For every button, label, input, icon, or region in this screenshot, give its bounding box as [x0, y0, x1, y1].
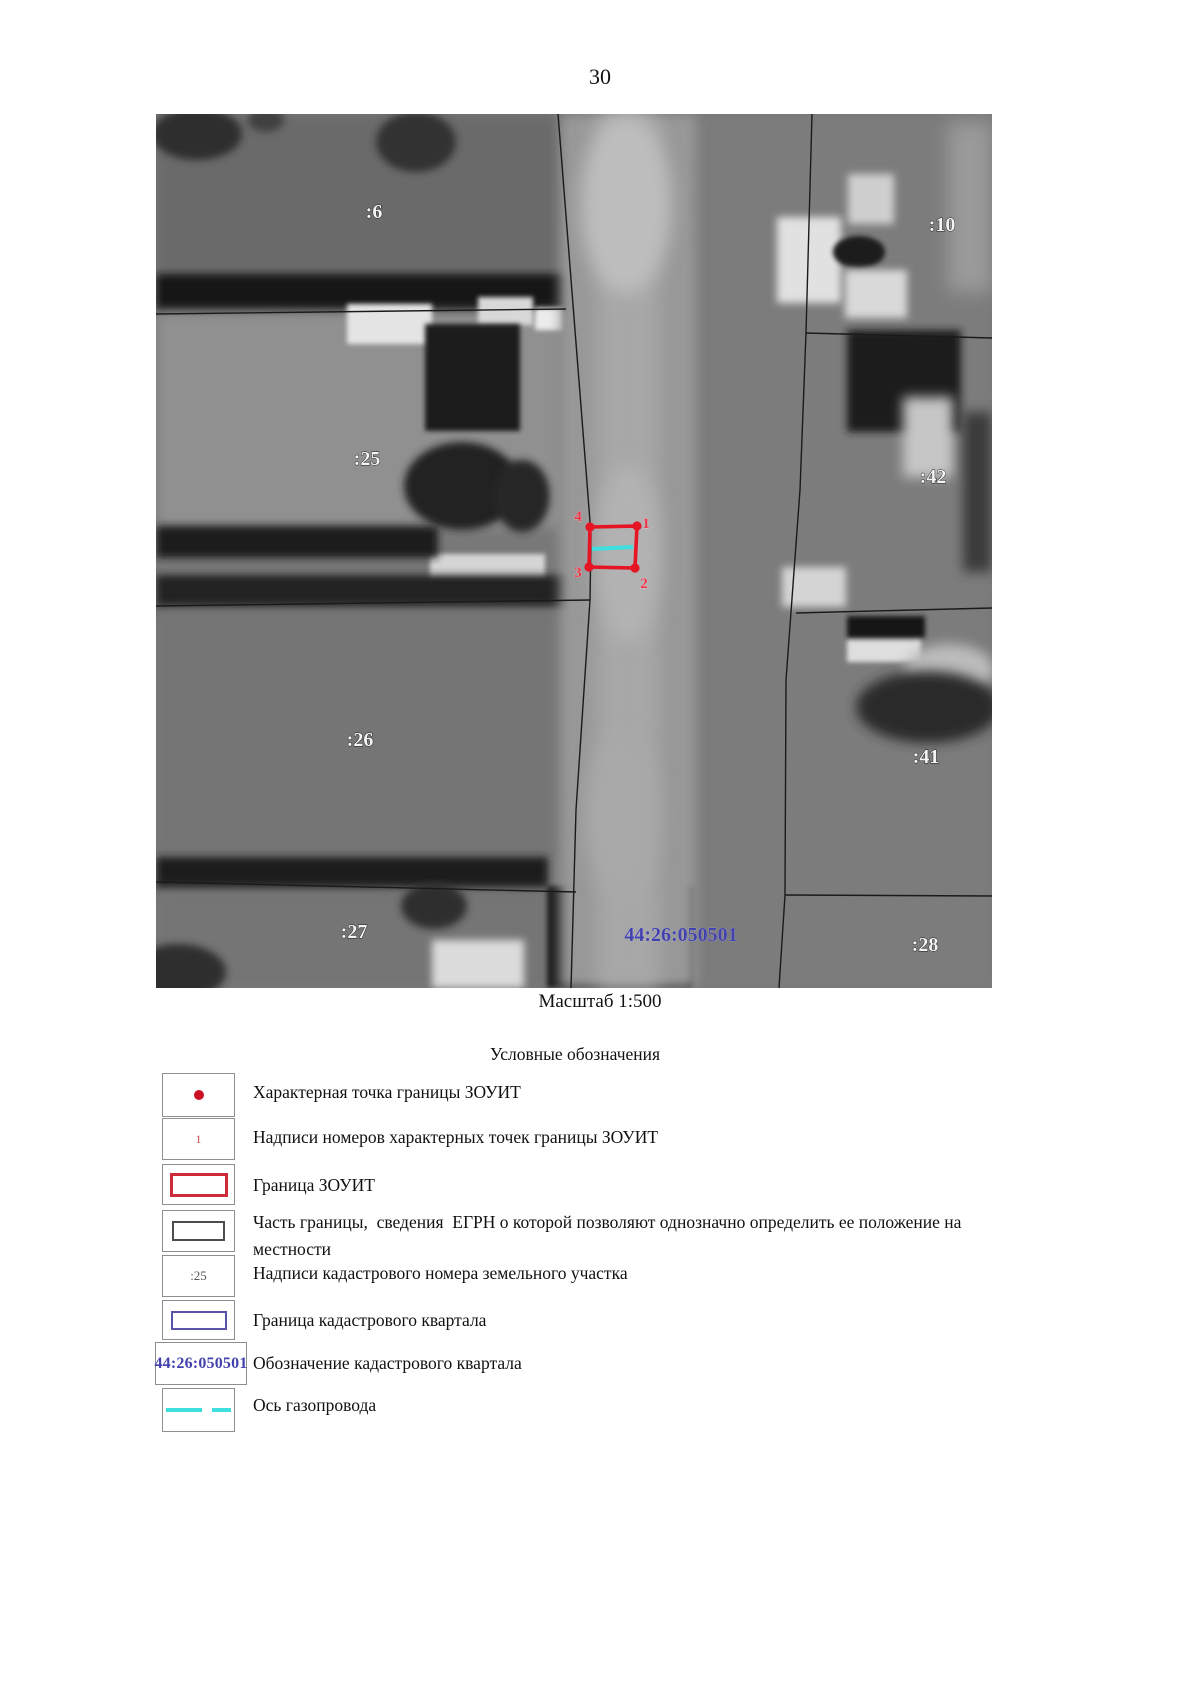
page-number: 30	[0, 64, 1200, 90]
scale-caption: Масштаб 1:500	[0, 991, 1200, 1013]
vertex-point-2	[630, 563, 639, 572]
legend-symbol-box-7: 44:26:050501	[155, 1342, 247, 1385]
legend-label-8: Ось газопровода	[253, 1392, 993, 1419]
legend-label-3: Граница ЗОУИТ	[253, 1172, 993, 1199]
vertex-label-1: 1	[642, 516, 650, 532]
legend-symbol-box-1	[162, 1073, 235, 1117]
legend-title: Условные обозначения	[0, 1044, 1150, 1065]
legend-label-2: Надписи номеров характерных точек границ…	[253, 1124, 993, 1151]
boundary-line-41-28	[785, 895, 992, 896]
legend-symbol-box-4	[162, 1210, 235, 1252]
legend-label-6: Граница кадастрового квартала	[253, 1307, 993, 1334]
parcel-label-42: :42	[920, 466, 947, 488]
legend-symbol-box-8	[162, 1388, 235, 1432]
parcel-label-41: :41	[913, 746, 940, 768]
legend-symbol-box-5: :25	[162, 1255, 235, 1297]
legend-label-7: Обозначение кадастрового квартала	[253, 1350, 993, 1377]
vertex-label-2: 2	[640, 576, 648, 592]
cadastral-map-figure: 4 1 3 2 :6 :25 :26 :27 :10 :42 :41 :28 4…	[156, 114, 992, 988]
red-rectangle-icon	[170, 1173, 228, 1197]
gas-axis-line	[592, 547, 633, 549]
parcel-label-28: :28	[912, 934, 939, 956]
vertex-point-4	[585, 522, 594, 531]
red-point-icon	[194, 1090, 204, 1100]
legend-label-4: Часть границы, сведения ЕГРН о которой п…	[253, 1209, 993, 1263]
parcel-label-25: :25	[354, 448, 381, 470]
parcel-label-10: :10	[929, 214, 956, 236]
cadastral-quarter-label: 44:26:050501	[624, 924, 737, 946]
legend-label-1: Характерная точка границы ЗОУИТ	[253, 1079, 993, 1106]
parcel-label-27: :27	[341, 921, 368, 943]
quarter-number-icon: 44:26:050501	[154, 1355, 247, 1373]
point-number-icon: 1	[196, 1132, 202, 1147]
legend-symbol-box-3	[162, 1164, 235, 1205]
vertex-point-1	[632, 521, 641, 530]
parcel-number-icon: :25	[190, 1268, 207, 1284]
aerial-photo: 4 1 3 2 :6 :25 :26 :27 :10 :42 :41 :28 4…	[156, 114, 992, 988]
black-rectangle-icon	[172, 1221, 225, 1241]
legend-symbol-box-2: 1	[162, 1118, 235, 1160]
vertex-label-4: 4	[574, 509, 582, 525]
parcel-label-6: :6	[366, 201, 383, 223]
vertex-label-3: 3	[574, 565, 582, 581]
parcel-label-26: :26	[347, 729, 374, 751]
vertex-point-3	[584, 562, 593, 571]
blue-rectangle-icon	[171, 1311, 227, 1330]
cyan-dashed-line-icon	[165, 1406, 232, 1414]
legend-symbol-box-6	[162, 1300, 235, 1340]
legend-label-5: Надписи кадастрового номера земельного у…	[253, 1260, 993, 1287]
